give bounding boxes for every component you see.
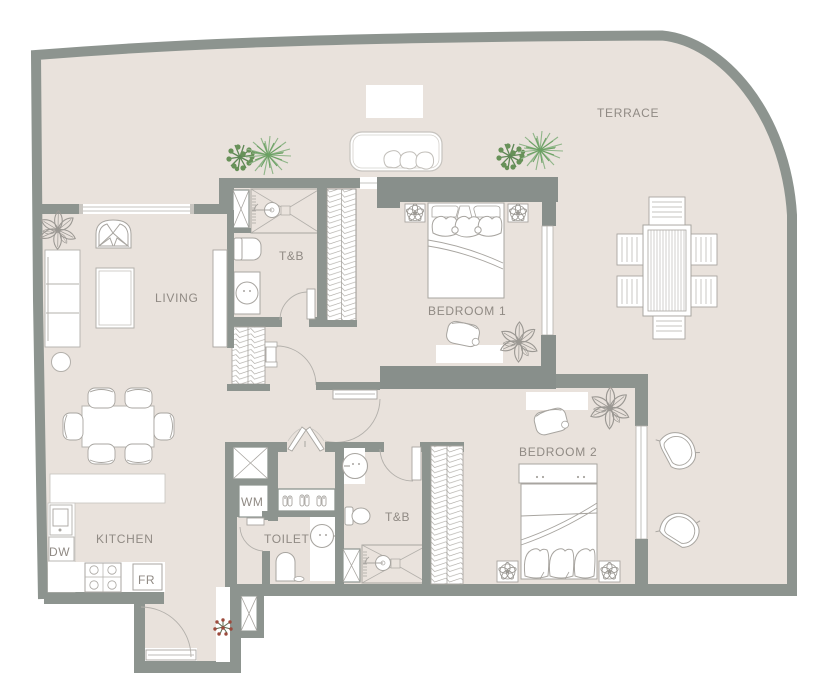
svg-text:T&B: T&B: [385, 510, 410, 524]
svg-text:LIVING: LIVING: [155, 291, 199, 305]
svg-text:BEDROOM 2: BEDROOM 2: [519, 445, 597, 459]
svg-text:KITCHEN: KITCHEN: [96, 532, 154, 546]
svg-text:BEDROOM 1: BEDROOM 1: [428, 304, 506, 318]
svg-text:TERRACE: TERRACE: [597, 106, 659, 120]
svg-text:WM: WM: [241, 495, 264, 509]
svg-text:TOILET: TOILET: [264, 532, 309, 546]
svg-text:FR: FR: [138, 573, 155, 587]
svg-text:DW: DW: [49, 545, 70, 559]
svg-text:T&B: T&B: [279, 249, 304, 263]
